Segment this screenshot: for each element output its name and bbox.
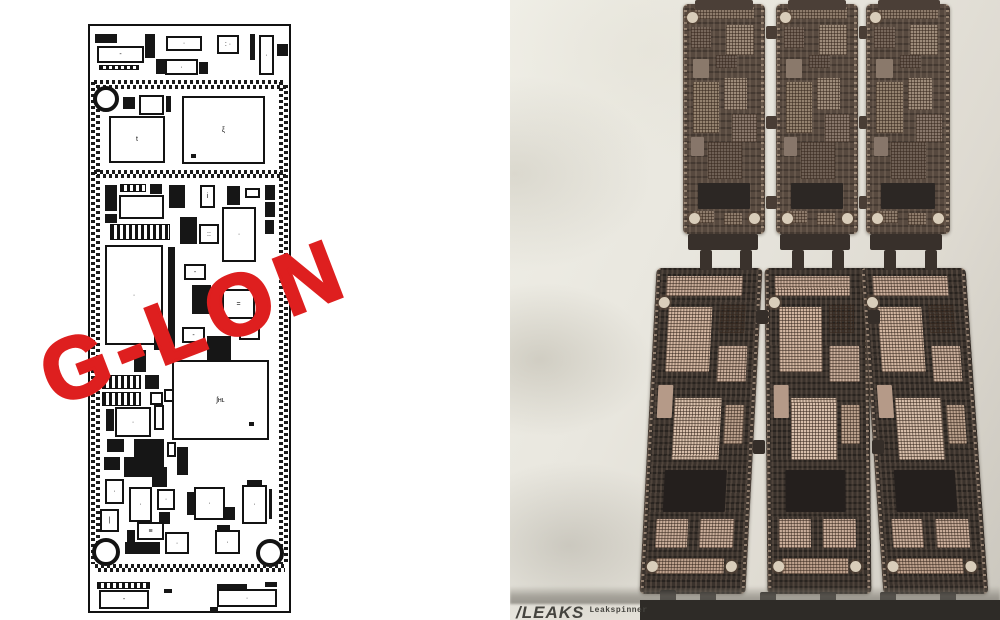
pcb-chip — [791, 398, 837, 460]
schematic-part-f — [169, 185, 185, 208]
pcb-chip — [809, 55, 830, 69]
panel-bridge — [792, 250, 804, 270]
schematic-part-f — [104, 457, 120, 470]
pcb-schematic-board: -··: ··ξti·::·-=--ʃʜʟ··|····≡··-· — [88, 24, 291, 613]
panel-bridge — [872, 440, 884, 454]
pcb-chip — [896, 558, 964, 574]
schematic-part-o: · — [217, 589, 277, 607]
schematic-part-o — [139, 95, 164, 115]
schematic-part-f — [106, 409, 114, 431]
schematic-part-o: · — [166, 36, 202, 51]
pcb-chip — [894, 470, 958, 512]
pcb-chip — [819, 25, 847, 55]
panel-bridge — [859, 116, 867, 129]
schematic-part-h — [93, 86, 119, 112]
schematic-part-bh — [94, 80, 286, 89]
pcb-screw-hole — [687, 12, 698, 23]
pcb-screw-hole — [780, 12, 791, 23]
schematic-part-f — [180, 217, 197, 244]
schematic-part-s — [102, 375, 141, 389]
pcb-chip — [908, 78, 932, 110]
schematic-part-f — [168, 247, 175, 347]
pcb-chip — [655, 558, 724, 574]
schematic-part-o: · — [165, 59, 198, 75]
schematic-part-f — [265, 185, 275, 200]
photo-panel: G-LON /LEAKS Leakspinner — [510, 0, 1000, 620]
schematic-part-f — [125, 542, 160, 554]
pcb-chip — [823, 519, 857, 548]
pcb-chip — [908, 213, 926, 225]
pcb-chip — [784, 27, 804, 48]
pcb-chip — [876, 59, 893, 77]
schematic-part-o: t — [109, 116, 165, 163]
panel-bridge — [868, 310, 880, 324]
schematic-part-f — [187, 492, 194, 515]
panel-bridge — [756, 310, 768, 324]
pcb-chip — [708, 142, 742, 179]
pcb-chip — [891, 519, 925, 548]
pcb-chip — [910, 25, 939, 55]
pcb-chip — [691, 27, 711, 48]
pcb-chip — [716, 55, 737, 69]
pcb-chip — [841, 405, 860, 444]
pcb-chip — [928, 304, 955, 333]
panel-bridge — [766, 26, 777, 39]
panel-bridge — [766, 116, 777, 129]
schematic-part-o: - — [182, 327, 205, 343]
pcb-chip — [693, 59, 709, 77]
pcb-screw-hole — [965, 561, 977, 572]
schematic-part-s — [110, 224, 170, 240]
pcb-chip — [665, 307, 713, 372]
pcb-screw-hole — [842, 213, 853, 224]
schematic-panel: -··: ··ξti·::·-=--ʃʜʟ··|····≡··-· G-LON — [0, 0, 510, 620]
panel-bridge — [688, 234, 758, 250]
pcb-screw-hole — [782, 213, 793, 224]
schematic-part-f — [250, 34, 255, 60]
pcb-chip — [732, 114, 757, 142]
schematic-part-o: · — [105, 245, 163, 345]
schematic-part-s — [97, 582, 150, 589]
pcb-chip — [916, 114, 941, 142]
schematic-part-s — [99, 65, 139, 70]
pcb-chip — [691, 137, 704, 155]
schematic-part-bh — [94, 170, 286, 178]
schematic-part-f — [154, 332, 168, 350]
schematic-part-o — [119, 195, 164, 219]
schematic-part-f — [134, 350, 146, 372]
panel-bridge — [700, 250, 712, 270]
pcb-chip — [830, 346, 859, 382]
schematic-part-o: · — [215, 530, 240, 554]
pcb-chip — [774, 385, 789, 418]
schematic-part-o: · — [115, 407, 151, 437]
pcb-chip — [946, 405, 968, 444]
credit-brand: /LEAKS — [516, 603, 584, 620]
pcb-chip — [699, 519, 734, 548]
pcb-chip — [825, 114, 850, 142]
schematic-part-f — [192, 285, 211, 314]
panel-bridge — [870, 234, 942, 250]
pcb-chip — [785, 470, 846, 512]
pcb-chip — [877, 385, 894, 418]
pcb-chip — [655, 519, 688, 548]
schematic-part-bv — [279, 82, 288, 564]
pcb-screw-hole — [872, 213, 883, 224]
panel-bridge — [859, 196, 867, 209]
schematic-part-o: - — [184, 264, 206, 280]
schematic-part-f — [177, 447, 188, 475]
pcb-chip — [872, 276, 949, 296]
schematic-part-f — [191, 154, 196, 158]
schematic-part-f — [107, 439, 124, 452]
schematic-part-f — [213, 302, 221, 313]
pcb-chip — [935, 519, 971, 548]
panel-bridge — [925, 250, 937, 270]
schematic-part-o: · — [259, 35, 274, 75]
schematic-part-o: · — [165, 532, 189, 554]
schematic-part-o: ʃʜʟ — [172, 360, 269, 440]
schematic-part-f — [123, 97, 135, 109]
schematic-part-o: · — [105, 479, 124, 504]
pcb-chip — [895, 398, 946, 460]
pcb-chip — [801, 142, 835, 179]
pcb-chip — [726, 25, 754, 55]
schematic-part-h — [92, 538, 120, 566]
schematic-part-f — [156, 59, 165, 74]
schematic-part-s — [120, 184, 146, 192]
pcb-screw-hole — [850, 561, 861, 572]
schematic-part-f — [225, 507, 235, 520]
schematic-part-o — [154, 405, 164, 430]
schematic-part-f — [105, 214, 117, 223]
pcb-chip — [874, 137, 887, 155]
pcb-screw-hole — [689, 213, 700, 224]
pcb-board — [683, 4, 765, 234]
schematic-part-f — [199, 62, 208, 74]
pcb-chip — [693, 82, 719, 133]
pcb-chip — [666, 276, 743, 296]
pcb-screw-hole — [725, 561, 737, 572]
pcb-chip — [786, 59, 802, 77]
schematic-part-bh — [95, 564, 285, 572]
pcb-chip — [786, 82, 812, 133]
pcb-screw-hole — [870, 12, 881, 23]
schematic-part-f — [265, 582, 277, 587]
schematic-part-o: · — [194, 487, 225, 520]
schematic-part-f — [269, 489, 272, 519]
pcb-chip — [775, 276, 850, 296]
schematic-part-f — [207, 336, 231, 360]
schematic-part-o: :: — [199, 224, 219, 244]
schematic-part-o: ≡ — [137, 522, 164, 540]
schematic-part-f — [164, 589, 172, 593]
schematic-part-o: · — [157, 489, 175, 510]
schematic-part-f — [145, 375, 159, 389]
pcb-chip — [817, 213, 835, 225]
pcb-screw-hole — [749, 213, 760, 224]
leak-composite-image: -··: ··ξti·::·-=--ʃʜʟ··|····≡··-· G-LON … — [0, 0, 1000, 620]
panel-bridge — [780, 234, 850, 250]
credit-watermark: /LEAKS Leakspinner — [516, 603, 648, 620]
pcb-chip — [881, 183, 935, 208]
schematic-part-o: - — [99, 590, 149, 609]
schematic-part-f — [150, 184, 162, 194]
schematic-part-f — [210, 607, 218, 612]
schematic-part-o — [167, 442, 176, 457]
pcb-chip — [876, 82, 903, 133]
pcb-chip — [931, 346, 963, 382]
pcb-screw-hole — [933, 213, 944, 224]
schematic-part-f — [105, 185, 117, 211]
panel-bridge — [884, 250, 896, 270]
pcb-chip — [724, 405, 745, 444]
panel-bridge — [788, 0, 846, 10]
schematic-part-o: | — [100, 509, 119, 532]
pcb-chip — [791, 183, 843, 208]
panel-bridge — [753, 440, 765, 454]
pcb-board — [776, 4, 858, 234]
schematic-part-o: - — [97, 46, 144, 63]
pcb-chip — [724, 213, 742, 225]
panel-bridge — [832, 250, 844, 270]
panel-bridge — [766, 196, 777, 209]
pcb-chip — [716, 346, 748, 382]
schematic-part-f — [265, 202, 275, 217]
pcb-chip — [900, 55, 922, 69]
schematic-part-f — [227, 186, 240, 205]
panel-bridge — [859, 26, 867, 39]
pcb-chip — [724, 78, 747, 110]
pcb-chip — [778, 307, 822, 372]
pcb-chip — [782, 558, 849, 574]
schematic-part-f — [277, 44, 288, 56]
schematic-part-o: · — [129, 487, 152, 522]
schematic-part-h — [256, 539, 284, 567]
schematic-part-f — [249, 422, 254, 426]
schematic-part-o: = — [222, 289, 255, 319]
schematic-part-f — [145, 34, 155, 58]
pcb-chip — [829, 304, 854, 333]
pcb-chip — [817, 78, 840, 110]
pcb-board — [639, 268, 762, 594]
panel-bridge — [740, 250, 752, 270]
schematic-part-o: · — [222, 207, 256, 262]
schematic-part-f — [95, 34, 117, 43]
pcb-chip — [877, 307, 926, 372]
schematic-part-f — [166, 96, 171, 112]
panel-bridge — [695, 0, 753, 10]
pcb-chip — [874, 27, 894, 48]
pcb-chip — [657, 385, 674, 418]
pcb-board — [765, 268, 872, 594]
pcb-chip — [698, 183, 750, 208]
pcb-chip — [891, 142, 926, 179]
schematic-part-o — [150, 392, 163, 405]
schematic-part-o: : · — [217, 35, 239, 54]
credit-subtext: Leakspinner — [589, 606, 647, 615]
pcb-chip — [663, 470, 727, 512]
pcb-chip — [784, 137, 797, 155]
pcb-chip — [719, 304, 746, 333]
pcb-board — [866, 4, 950, 234]
panel-bottom-rail — [640, 600, 1000, 620]
schematic-part-o: i — [200, 185, 215, 208]
schematic-part-f — [265, 220, 274, 234]
pcb-chip — [672, 398, 722, 460]
schematic-part-o: - — [239, 324, 260, 340]
panel-bridge — [878, 0, 940, 10]
schematic-part-o — [245, 188, 260, 198]
schematic-part-f — [152, 467, 167, 487]
schematic-part-s — [102, 392, 141, 406]
schematic-part-bv — [91, 82, 100, 564]
pcb-chip — [779, 519, 810, 548]
schematic-part-o: · — [242, 485, 267, 524]
